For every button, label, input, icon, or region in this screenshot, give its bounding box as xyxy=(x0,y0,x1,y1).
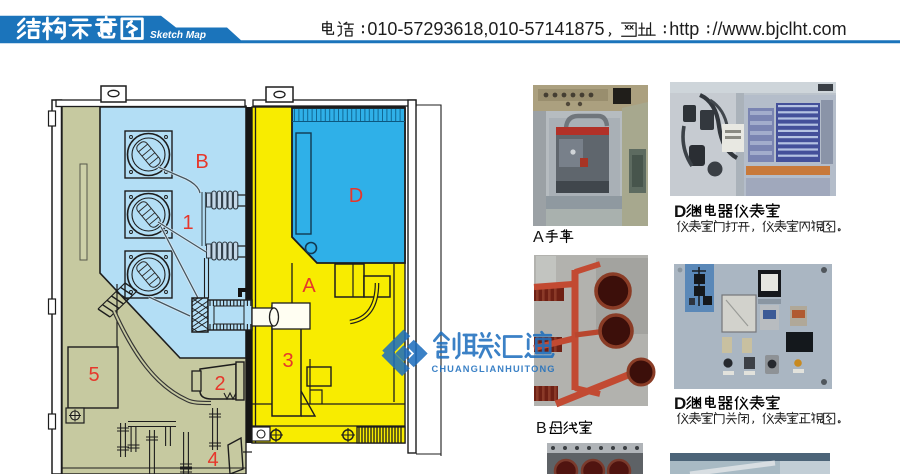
svg-text:A: A xyxy=(302,275,316,297)
svg-text:D: D xyxy=(674,394,686,413)
svg-text:A: A xyxy=(533,229,544,246)
svg-text:D: D xyxy=(674,202,686,221)
svg-text:D: D xyxy=(349,185,363,207)
svg-text:B: B xyxy=(536,420,547,437)
svg-text:5: 5 xyxy=(88,364,99,386)
svg-text:Sketch Map: Sketch Map xyxy=(150,30,206,41)
svg-text:1: 1 xyxy=(182,212,193,234)
svg-text://www.bjclht.com: //www.bjclht.com xyxy=(713,19,847,39)
svg-text:http: http xyxy=(669,19,699,39)
svg-text:B: B xyxy=(195,151,208,173)
svg-text:4: 4 xyxy=(207,449,218,471)
svg-text:2: 2 xyxy=(214,373,225,395)
svg-text:CHUANGLIANHUITONG: CHUANGLIANHUITONG xyxy=(432,364,555,374)
svg-text:3: 3 xyxy=(282,350,293,372)
svg-text:010-57293618,010-57141875: 010-57293618,010-57141875 xyxy=(367,19,604,39)
